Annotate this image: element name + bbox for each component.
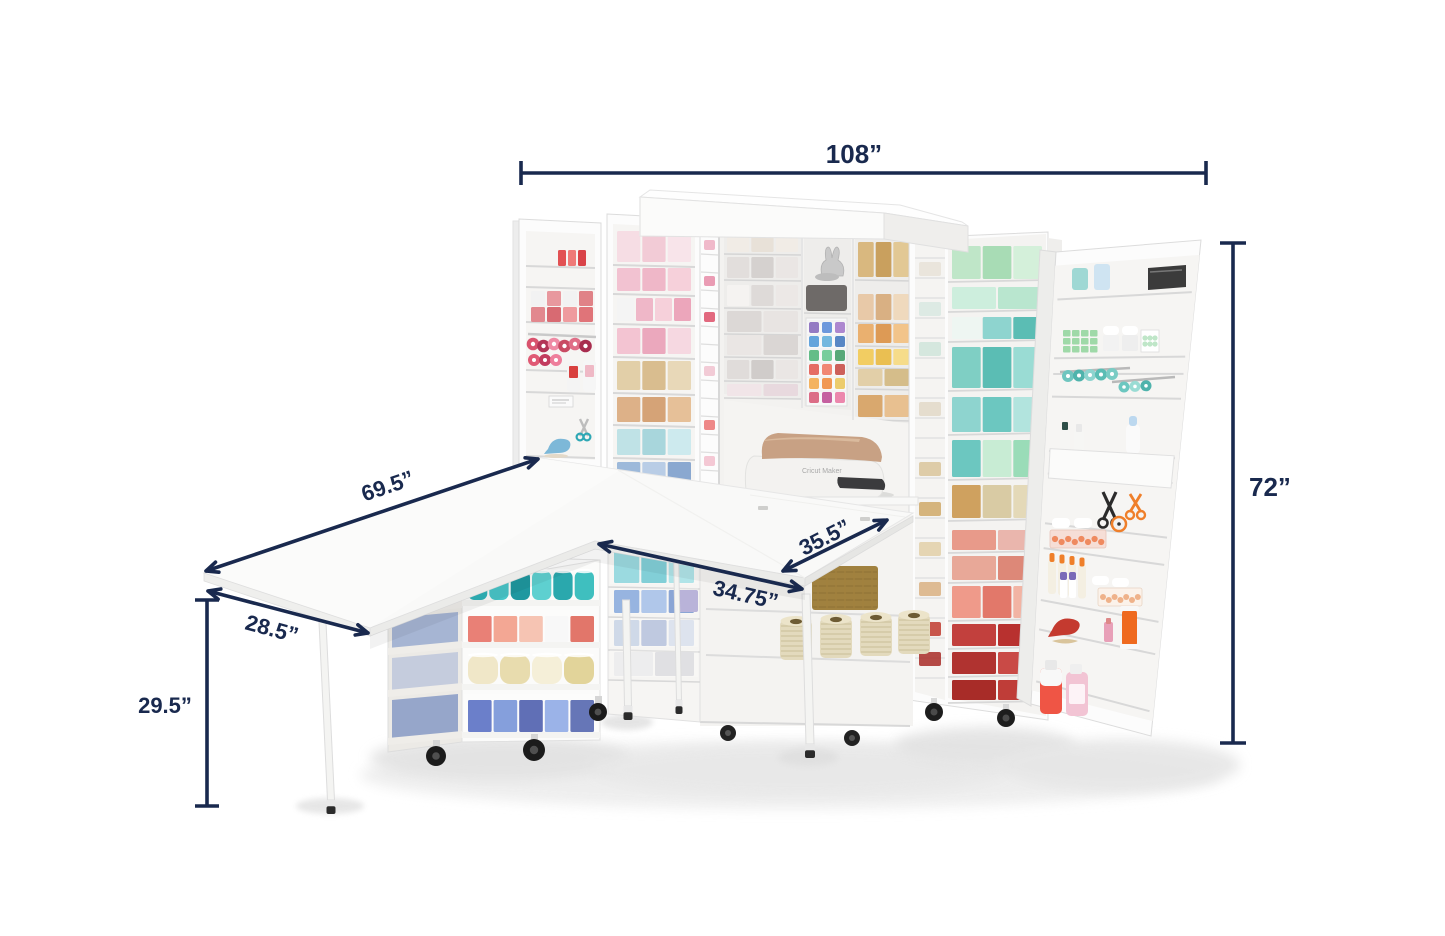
svg-text:Cricut Maker: Cricut Maker [802,468,842,475]
svg-text:108”: 108” [826,139,882,169]
svg-text:72”: 72” [1249,472,1291,502]
svg-text:29.5”: 29.5” [138,693,192,718]
